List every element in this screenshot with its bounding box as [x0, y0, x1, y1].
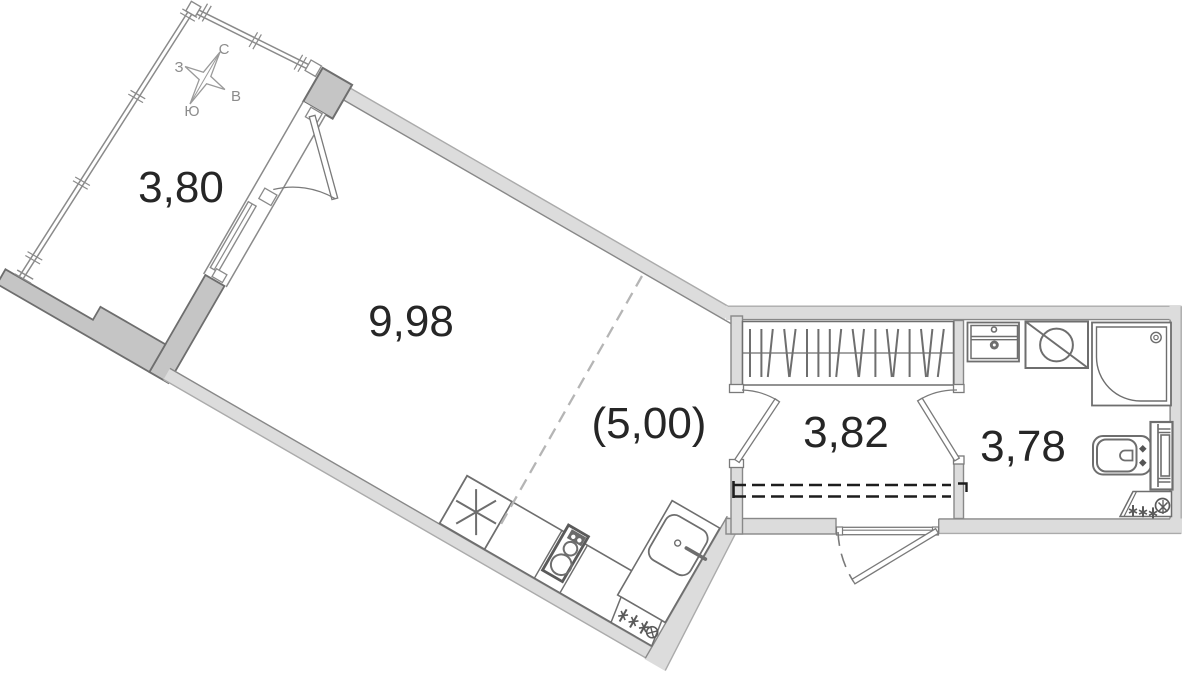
svg-text:Ю: Ю [184, 103, 199, 120]
svg-text:З: З [174, 59, 183, 76]
svg-text:С: С [219, 41, 230, 58]
svg-text:(5,00): (5,00) [592, 399, 707, 448]
svg-text:3,78: 3,78 [980, 422, 1066, 471]
svg-text:3,82: 3,82 [803, 408, 889, 457]
svg-text:В: В [231, 88, 241, 105]
svg-text:3,80: 3,80 [138, 163, 224, 212]
svg-text:9,98: 9,98 [368, 297, 454, 346]
